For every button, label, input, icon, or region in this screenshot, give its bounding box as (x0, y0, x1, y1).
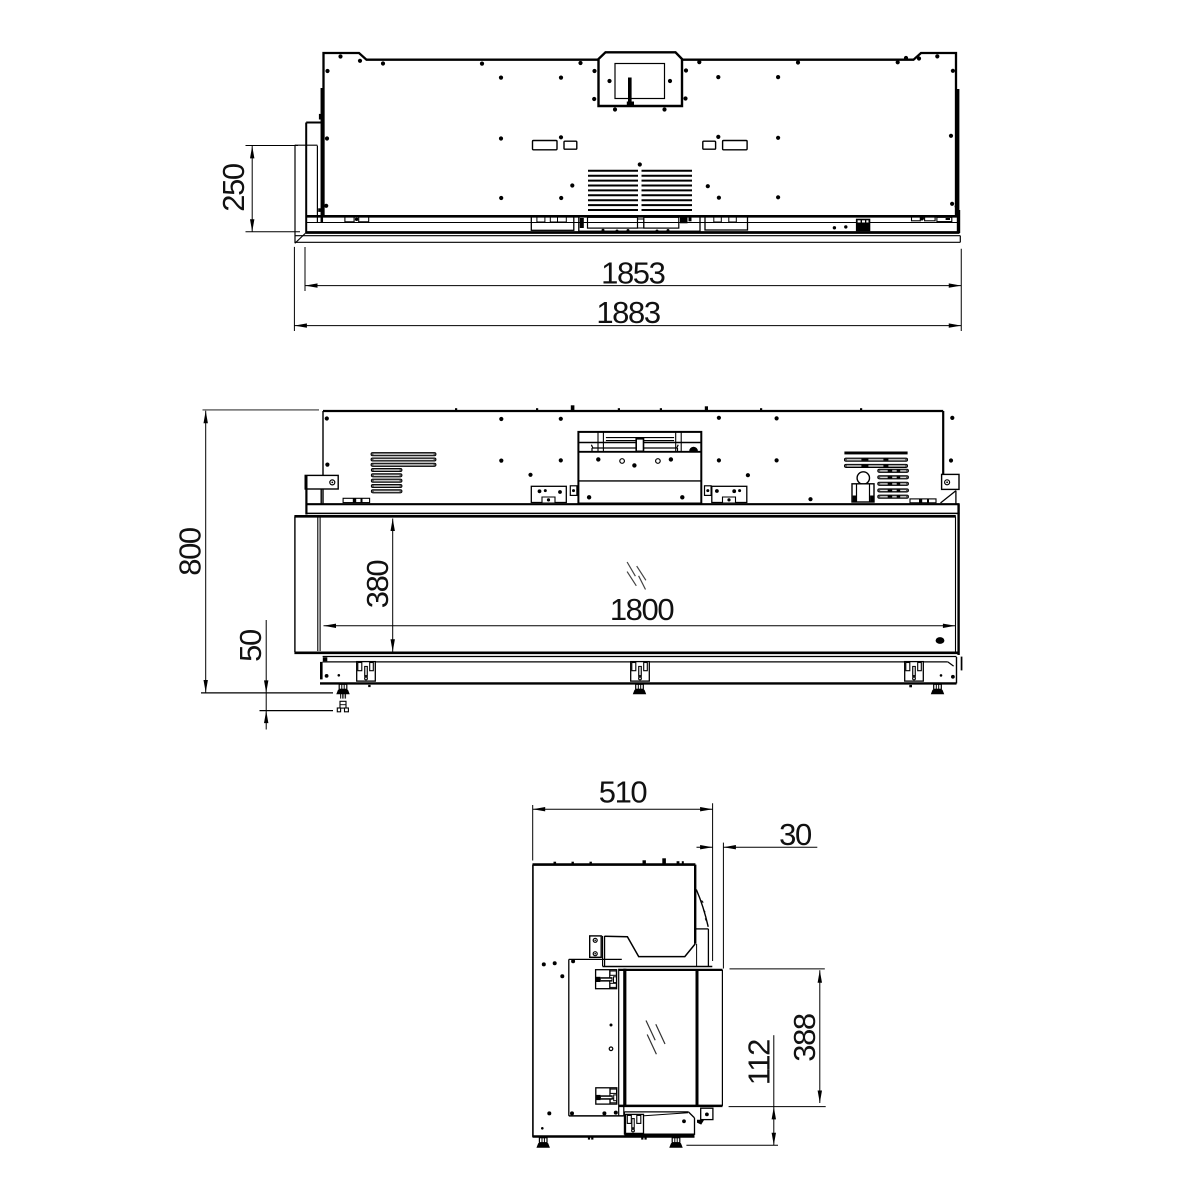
svg-text:380: 380 (360, 560, 395, 609)
svg-text:250: 250 (216, 163, 251, 212)
svg-text:1853: 1853 (601, 255, 665, 290)
svg-text:388: 388 (787, 1014, 822, 1062)
svg-text:510: 510 (599, 775, 648, 810)
svg-text:50: 50 (233, 629, 268, 662)
svg-text:30: 30 (779, 817, 812, 852)
svg-text:1883: 1883 (596, 295, 660, 330)
svg-text:1800: 1800 (610, 592, 675, 627)
svg-text:112: 112 (742, 1040, 777, 1085)
svg-text:800: 800 (173, 527, 208, 576)
